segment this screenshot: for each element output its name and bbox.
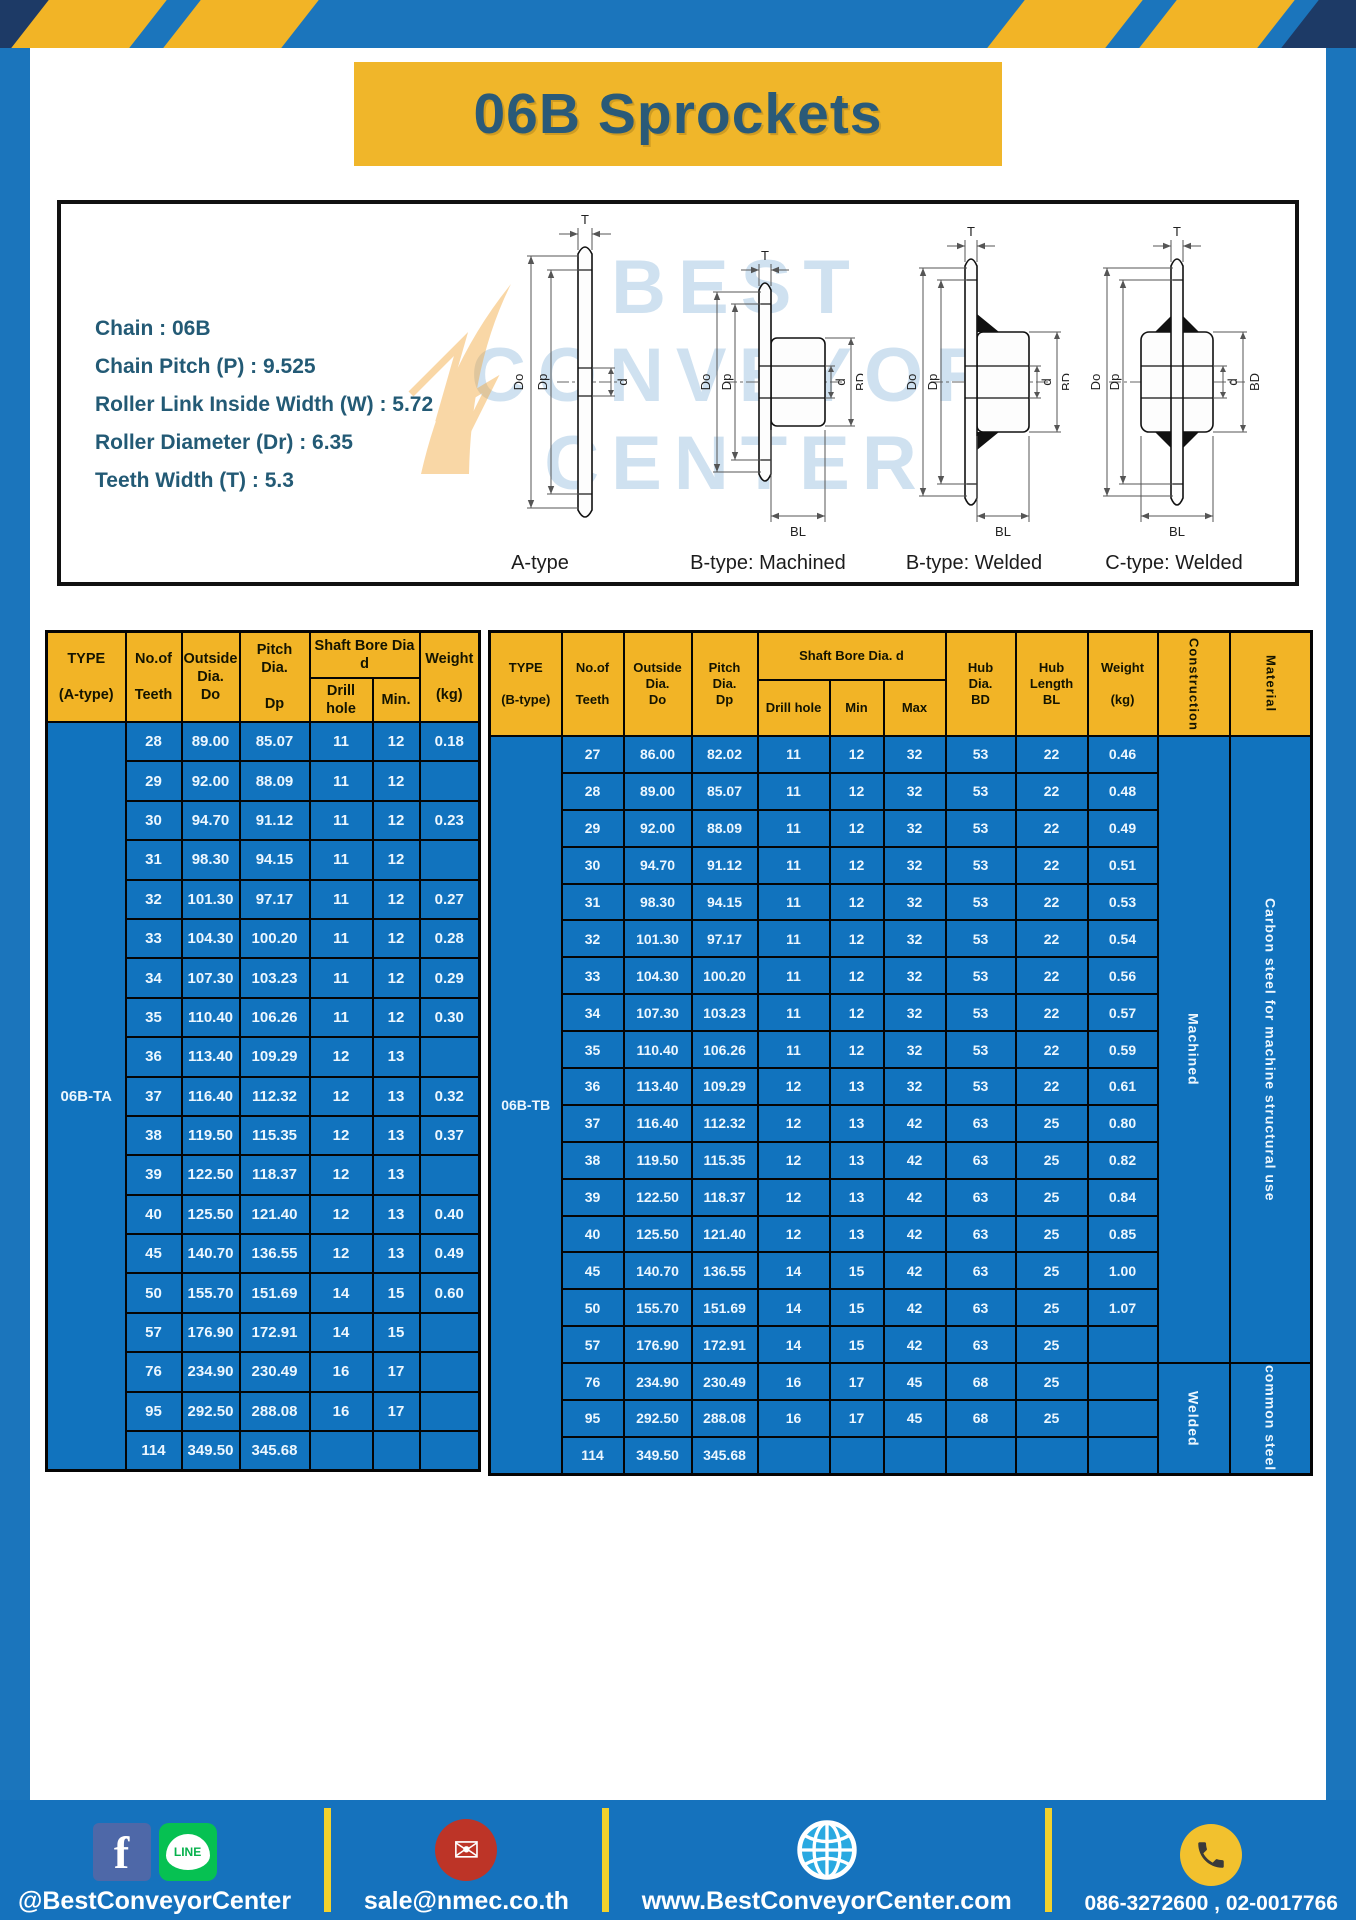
col-header-pitch-dia: Pitch Dia. Dp [240, 632, 310, 723]
cell: 11 [310, 958, 373, 997]
cell: 172.91 [240, 1313, 310, 1352]
cell [420, 1392, 480, 1431]
cell: 88.09 [240, 761, 310, 800]
cell: 12 [758, 1216, 830, 1253]
cell: 13 [373, 1116, 420, 1155]
cell [420, 1352, 480, 1391]
footer-social-handle: @BestConveyorCenter [18, 1887, 291, 1916]
cell: 42 [884, 1216, 946, 1253]
svg-text:Do: Do [511, 374, 526, 391]
cell: 63 [946, 1216, 1016, 1253]
cell: 40 [562, 1216, 624, 1253]
cell: 15 [830, 1289, 884, 1326]
cell: 11 [310, 722, 373, 761]
cell: 13 [373, 1155, 420, 1194]
cell [420, 761, 480, 800]
cell: 63 [946, 1142, 1016, 1179]
svg-text:Dp: Dp [719, 374, 734, 391]
cell: 22 [1016, 994, 1088, 1031]
cell: 104.30 [182, 919, 240, 958]
cell: 12 [758, 1105, 830, 1142]
cell [373, 1431, 420, 1471]
cell: 12 [373, 801, 420, 840]
cell: 91.12 [240, 801, 310, 840]
cell: 106.26 [240, 998, 310, 1037]
cell: 45 [126, 1234, 182, 1273]
cell: 12 [373, 840, 420, 879]
diagram-a-type: T Do Dp d [465, 212, 635, 552]
cell: 0.49 [1088, 810, 1158, 847]
cell: 98.30 [624, 884, 692, 921]
cell: 12 [310, 1037, 373, 1076]
cell: 57 [562, 1326, 624, 1363]
cell: 98.30 [182, 840, 240, 879]
col-header-max: Max [884, 680, 946, 736]
cell: 12 [758, 1142, 830, 1179]
cell [884, 1437, 946, 1474]
table-row: 06B-TB2786.0082.0211123253220.46Machined… [490, 736, 1312, 773]
cell: 68 [946, 1400, 1016, 1437]
cell: 230.49 [692, 1363, 758, 1400]
cell: 16 [310, 1392, 373, 1431]
svg-text:Do: Do [904, 374, 919, 391]
cell: 22 [1016, 957, 1088, 994]
col-header-drill-hole: Drill hole [758, 680, 830, 736]
cell: 76 [562, 1363, 624, 1400]
cell: 103.23 [692, 994, 758, 1031]
material-cell: common steel [1230, 1363, 1312, 1474]
cell: 288.08 [240, 1392, 310, 1431]
cell: 12 [310, 1077, 373, 1116]
svg-text:BD: BD [1247, 373, 1262, 391]
cell: 101.30 [182, 880, 240, 919]
yellow-stripe [983, 0, 1148, 48]
cell: 94.70 [182, 801, 240, 840]
cell: 11 [310, 880, 373, 919]
cell: 22 [1016, 847, 1088, 884]
footer-social-section: f LINE @BestConveyorCenter [18, 1804, 291, 1916]
mail-icon: ✉ [435, 1819, 497, 1881]
cell: 115.35 [692, 1142, 758, 1179]
cell: 176.90 [182, 1313, 240, 1352]
cell: 11 [310, 801, 373, 840]
col-header-outside-dia: Outside Dia. Do [182, 632, 240, 723]
cell: 15 [830, 1252, 884, 1289]
cell: 27 [562, 736, 624, 773]
cell: 12 [758, 1068, 830, 1105]
cell: 22 [1016, 884, 1088, 921]
footer-contact-bar: f LINE @BestConveyorCenter ✉ sale@nmec.c… [0, 1800, 1356, 1920]
cell: 53 [946, 1068, 1016, 1105]
cell: 15 [830, 1326, 884, 1363]
cell [946, 1437, 1016, 1474]
svg-text:Do: Do [698, 374, 713, 391]
cell [420, 1313, 480, 1352]
caption-b-type-welded: B-type: Welded [879, 552, 1069, 575]
diagram-b-type-machined: T Do Dp d [673, 212, 863, 552]
svg-text:T: T [1173, 224, 1181, 239]
cell: 12 [830, 847, 884, 884]
cell: 0.85 [1088, 1216, 1158, 1253]
cell: 32 [884, 994, 946, 1031]
diagram-c-type-welded: T Do Dp d [1079, 212, 1269, 552]
cell: 89.00 [182, 722, 240, 761]
cell: 53 [946, 1031, 1016, 1068]
table-b-type: TYPE (B-type) No.of Teeth Outside Dia. D… [488, 630, 1313, 1476]
cell: 0.49 [420, 1234, 480, 1273]
table-row: 06B-TA2889.0085.0711120.18 [47, 722, 480, 761]
cell: 114 [126, 1431, 182, 1471]
page-title: 06B Sprockets [473, 81, 882, 147]
cell: 50 [562, 1289, 624, 1326]
cell: 92.00 [182, 761, 240, 800]
cell: 25 [1016, 1289, 1088, 1326]
cell: 57 [126, 1313, 182, 1352]
cell: 136.55 [240, 1234, 310, 1273]
cell: 0.37 [420, 1116, 480, 1155]
cell: 86.00 [624, 736, 692, 773]
svg-text:BD: BD [853, 373, 863, 391]
spec-line: Roller Diameter (Dr) : 6.35 [95, 424, 433, 462]
cell: 110.40 [182, 998, 240, 1037]
cell: 42 [884, 1142, 946, 1179]
caption-c-type-welded: C-type: Welded [1079, 552, 1269, 575]
svg-text:Dp: Dp [535, 374, 550, 391]
col-header-teeth: No.of Teeth [562, 632, 624, 737]
cell: 12 [830, 920, 884, 957]
cell: 0.53 [1088, 884, 1158, 921]
cell: 63 [946, 1179, 1016, 1216]
cell: 17 [373, 1352, 420, 1391]
cell: 82.02 [692, 736, 758, 773]
spec-line: Chain : 06B [95, 310, 433, 348]
cell: 11 [758, 773, 830, 810]
cell: 109.29 [240, 1037, 310, 1076]
cell: 31 [562, 884, 624, 921]
cell: 113.40 [624, 1068, 692, 1105]
cell: 97.17 [692, 920, 758, 957]
cell: 42 [884, 1105, 946, 1142]
cell: 22 [1016, 920, 1088, 957]
cell: 63 [946, 1105, 1016, 1142]
cell: 25 [1016, 1105, 1088, 1142]
cell: 11 [758, 847, 830, 884]
cell: 0.57 [1088, 994, 1158, 1031]
cell: 118.37 [240, 1155, 310, 1194]
spec-line: Chain Pitch (P) : 9.525 [95, 348, 433, 386]
cell: 25 [1016, 1252, 1088, 1289]
col-header-material: Material [1230, 632, 1312, 737]
cell: 42 [884, 1179, 946, 1216]
spec-line: Teeth Width (T) : 5.3 [95, 462, 433, 500]
cell: 0.61 [1088, 1068, 1158, 1105]
cell: 151.69 [240, 1273, 310, 1312]
cell: 136.55 [692, 1252, 758, 1289]
material-cell: Carbon steel for machine structural use [1230, 736, 1312, 1363]
cell: 63 [946, 1289, 1016, 1326]
cell [1088, 1437, 1158, 1474]
cell: 12 [310, 1116, 373, 1155]
col-header-hub-length: Hub Length BL [1016, 632, 1088, 737]
col-header-type: TYPE (A-type) [47, 632, 126, 723]
cell: 76 [126, 1352, 182, 1391]
cell: 115.35 [240, 1116, 310, 1155]
cell: 12 [373, 761, 420, 800]
cell: 230.49 [240, 1352, 310, 1391]
cell: 53 [946, 736, 1016, 773]
type-cell: 06B-TA [47, 722, 126, 1471]
title-box: 06B Sprockets [354, 62, 1002, 166]
cell: 17 [830, 1363, 884, 1400]
cell: 349.50 [182, 1431, 240, 1471]
cell: 112.32 [240, 1077, 310, 1116]
type-cell: 06B-TB [490, 736, 562, 1474]
cell: 11 [310, 919, 373, 958]
cell: 11 [310, 840, 373, 879]
cell: 292.50 [624, 1400, 692, 1437]
cell: 12 [830, 773, 884, 810]
cell: 12 [830, 957, 884, 994]
cell: 11 [758, 736, 830, 773]
cell: 17 [373, 1392, 420, 1431]
cell: 34 [562, 994, 624, 1031]
table-row: 76234.90230.491617456825Weldedcommon ste… [490, 1363, 1312, 1400]
cell: 345.68 [692, 1437, 758, 1474]
footer-separator [1045, 1808, 1052, 1912]
cell: 30 [126, 801, 182, 840]
cell: 30 [562, 847, 624, 884]
cell: 1.07 [1088, 1289, 1158, 1326]
cell: 35 [126, 998, 182, 1037]
cell: 95 [562, 1400, 624, 1437]
cell: 85.07 [692, 773, 758, 810]
cell: 15 [373, 1313, 420, 1352]
cell: 68 [946, 1363, 1016, 1400]
cell: 53 [946, 847, 1016, 884]
col-header-hub-dia: Hub Dia. BD [946, 632, 1016, 737]
svg-text:d: d [1039, 378, 1054, 385]
table-a-type: TYPE (A-type) No.of Teeth Outside Dia. D… [45, 630, 481, 1472]
cell: 16 [758, 1363, 830, 1400]
cell: 42 [884, 1326, 946, 1363]
cell: 119.50 [624, 1142, 692, 1179]
cell: 28 [562, 773, 624, 810]
cell: 125.50 [182, 1195, 240, 1234]
cell: 25 [1016, 1326, 1088, 1363]
cell: 12 [830, 736, 884, 773]
col-header-outside-dia: Outside Dia. Do [624, 632, 692, 737]
svg-text:BD: BD [1059, 373, 1069, 391]
footer-separator [324, 1808, 331, 1912]
cell: 119.50 [182, 1116, 240, 1155]
cell: 0.56 [1088, 957, 1158, 994]
cell [758, 1437, 830, 1474]
cell: 0.82 [1088, 1142, 1158, 1179]
table-b-header: TYPE (B-type) No.of Teeth Outside Dia. D… [490, 632, 1312, 737]
spec-line: Roller Link Inside Width (W) : 5.72 [95, 386, 433, 424]
cell [420, 840, 480, 879]
footer-email: sale@nmec.co.th [364, 1887, 569, 1916]
cell: 32 [884, 884, 946, 921]
cell: 13 [830, 1142, 884, 1179]
cell: 32 [884, 957, 946, 994]
svg-text:Dp: Dp [1107, 374, 1122, 391]
cell: 234.90 [182, 1352, 240, 1391]
svg-text:Do: Do [1088, 374, 1103, 391]
cell: 32 [884, 1031, 946, 1068]
phone-icon [1180, 1824, 1242, 1886]
col-header-type: TYPE (B-type) [490, 632, 562, 737]
cell: 122.50 [624, 1179, 692, 1216]
cell: 107.30 [624, 994, 692, 1031]
cell [1088, 1400, 1158, 1437]
cell: 12 [373, 919, 420, 958]
col-header-teeth: No.of Teeth [126, 632, 182, 723]
cell: 94.15 [240, 840, 310, 879]
footer-website: www.BestConveyorCenter.com [642, 1887, 1012, 1916]
cell: 12 [373, 722, 420, 761]
cell: 234.90 [624, 1363, 692, 1400]
cell: 89.00 [624, 773, 692, 810]
cell: 12 [830, 994, 884, 1031]
cell: 12 [830, 810, 884, 847]
cell: 92.00 [624, 810, 692, 847]
cell [310, 1431, 373, 1471]
svg-text:T: T [581, 212, 589, 227]
cell: 118.37 [692, 1179, 758, 1216]
cell: 0.29 [420, 958, 480, 997]
diagram-panel: BEST CONVEYOR CENTER Chain : 06B Chain P… [57, 200, 1299, 586]
yellow-stripe [1135, 0, 1300, 48]
cell: 0.30 [420, 998, 480, 1037]
cell: 13 [830, 1179, 884, 1216]
footer-phone-section: 086-3272600 , 02-0017766 [1085, 1804, 1338, 1916]
cell: 29 [126, 761, 182, 800]
cell: 32 [884, 773, 946, 810]
cell: 42 [884, 1252, 946, 1289]
cell: 25 [1016, 1179, 1088, 1216]
cell: 11 [758, 884, 830, 921]
cell [420, 1155, 480, 1194]
cell: 112.32 [692, 1105, 758, 1142]
cell: 32 [884, 736, 946, 773]
cell: 11 [758, 957, 830, 994]
cell: 114 [562, 1437, 624, 1474]
col-header-drill-hole: Drill hole [310, 678, 373, 722]
cell: 36 [126, 1037, 182, 1076]
cell [1088, 1363, 1158, 1400]
cell [1016, 1437, 1088, 1474]
cell: 53 [946, 920, 1016, 957]
svg-text:Dp: Dp [925, 374, 940, 391]
cell: 0.54 [1088, 920, 1158, 957]
cell: 13 [373, 1037, 420, 1076]
globe-icon [796, 1819, 858, 1881]
cell: 22 [1016, 736, 1088, 773]
cell: 85.07 [240, 722, 310, 761]
cell: 349.50 [624, 1437, 692, 1474]
cell: 11 [758, 994, 830, 1031]
cell: 0.18 [420, 722, 480, 761]
cell: 0.84 [1088, 1179, 1158, 1216]
cell: 50 [126, 1273, 182, 1312]
cell: 32 [126, 880, 182, 919]
cell: 100.20 [240, 919, 310, 958]
cell: 33 [126, 919, 182, 958]
cell: 36 [562, 1068, 624, 1105]
footer-separator [602, 1808, 609, 1912]
cell: 106.26 [692, 1031, 758, 1068]
col-header-min: Min [830, 680, 884, 736]
cell: 15 [373, 1273, 420, 1312]
footer-website-section: www.BestConveyorCenter.com [642, 1804, 1012, 1916]
cell: 40 [126, 1195, 182, 1234]
svg-text:d: d [615, 378, 630, 385]
cell: 12 [373, 998, 420, 1037]
line-icon: LINE [159, 1823, 217, 1881]
construction-cell: Machined [1158, 736, 1230, 1363]
cell: 42 [884, 1289, 946, 1326]
cell: 292.50 [182, 1392, 240, 1431]
cell: 125.50 [624, 1216, 692, 1253]
cell: 11 [310, 761, 373, 800]
col-header-weight: Weight (kg) [1088, 632, 1158, 737]
cell: 12 [310, 1155, 373, 1194]
cell: 11 [758, 810, 830, 847]
cell: 0.51 [1088, 847, 1158, 884]
cell: 22 [1016, 810, 1088, 847]
cell: 12 [310, 1195, 373, 1234]
cell: 104.30 [624, 957, 692, 994]
cell: 140.70 [624, 1252, 692, 1289]
col-header-shaft-bore-group: Shaft Bore Dia. d [758, 632, 946, 681]
footer-email-section: ✉ sale@nmec.co.th [364, 1804, 569, 1916]
cell: 38 [126, 1116, 182, 1155]
cell: 45 [884, 1400, 946, 1437]
cell: 140.70 [182, 1234, 240, 1273]
cell: 53 [946, 957, 1016, 994]
cell: 100.20 [692, 957, 758, 994]
cell: 22 [1016, 773, 1088, 810]
cell: 38 [562, 1142, 624, 1179]
cell: 121.40 [240, 1195, 310, 1234]
svg-text:T: T [967, 224, 975, 239]
page: 06B Sprockets BEST CONVEYOR CENTER Chain… [0, 0, 1356, 1920]
yellow-stripe [159, 0, 324, 48]
cell: 37 [126, 1077, 182, 1116]
cell: 151.69 [692, 1289, 758, 1326]
cell: 25 [1016, 1216, 1088, 1253]
cell: 35 [562, 1031, 624, 1068]
cell: 25 [1016, 1142, 1088, 1179]
svg-text:d: d [1225, 378, 1240, 385]
cell: 53 [946, 810, 1016, 847]
cell: 11 [758, 1031, 830, 1068]
cell: 12 [373, 880, 420, 919]
cell: 17 [830, 1400, 884, 1437]
cell: 13 [830, 1105, 884, 1142]
cell: 45 [884, 1363, 946, 1400]
cell: 288.08 [692, 1400, 758, 1437]
cell: 16 [310, 1352, 373, 1391]
svg-text:BL: BL [790, 524, 806, 539]
cell: 12 [310, 1234, 373, 1273]
cell: 53 [946, 884, 1016, 921]
cell: 1.00 [1088, 1252, 1158, 1289]
cell: 172.91 [692, 1326, 758, 1363]
cell: 32 [884, 847, 946, 884]
cell: 14 [310, 1313, 373, 1352]
